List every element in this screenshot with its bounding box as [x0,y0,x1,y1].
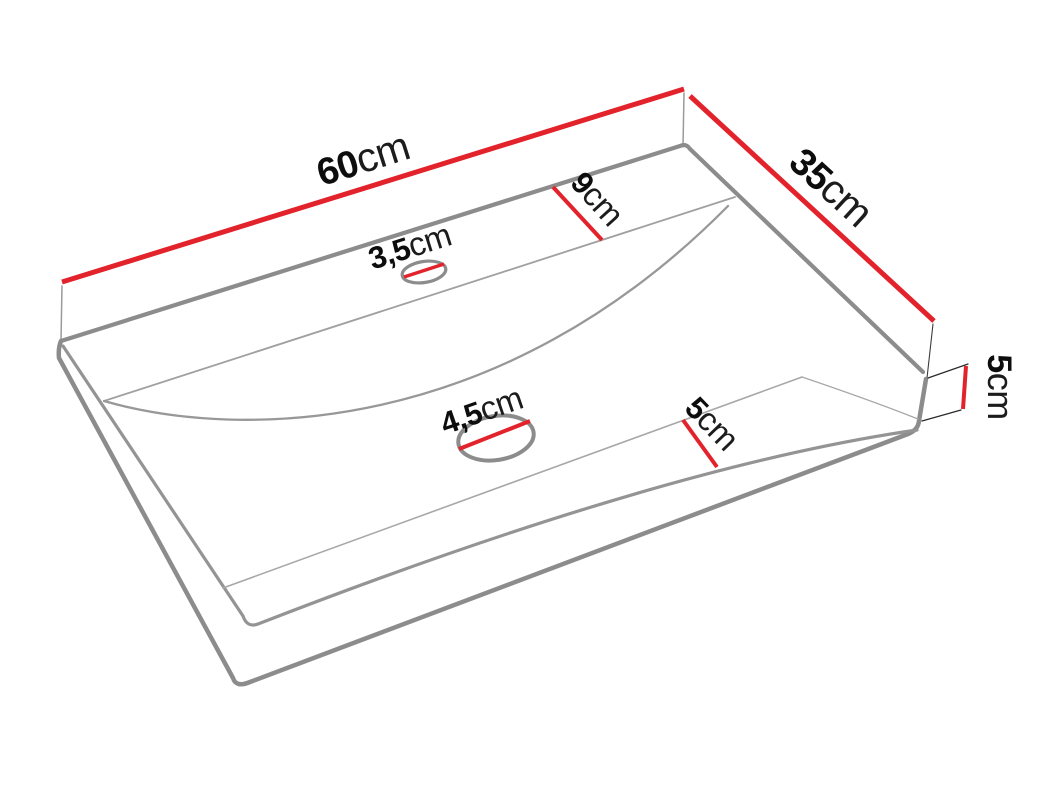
height-label: 5cm [980,354,1021,419]
height-extension-line-bottom [922,410,961,421]
right-corner-edge [927,324,933,378]
back-right-corner-edge [683,93,684,147]
washbasin-dimension-diagram: 60cm 35cm 9cm 3,5cm 4,5cm 5cm 5cm [0,0,1054,791]
washbasin-drawing: 60cm 35cm 9cm 3,5cm 4,5cm 5cm 5cm [0,0,1054,791]
basin-floor-right-line [802,377,918,419]
depth-label: 35cm [781,138,882,236]
height-dimension-line [963,366,966,409]
back-left-corner-edge [61,286,62,341]
width-label: 60cm [311,122,415,194]
height-extension-line-top [928,364,968,378]
front-rim-label: 5cm [678,389,746,458]
deck-label: 9cm [564,164,631,233]
